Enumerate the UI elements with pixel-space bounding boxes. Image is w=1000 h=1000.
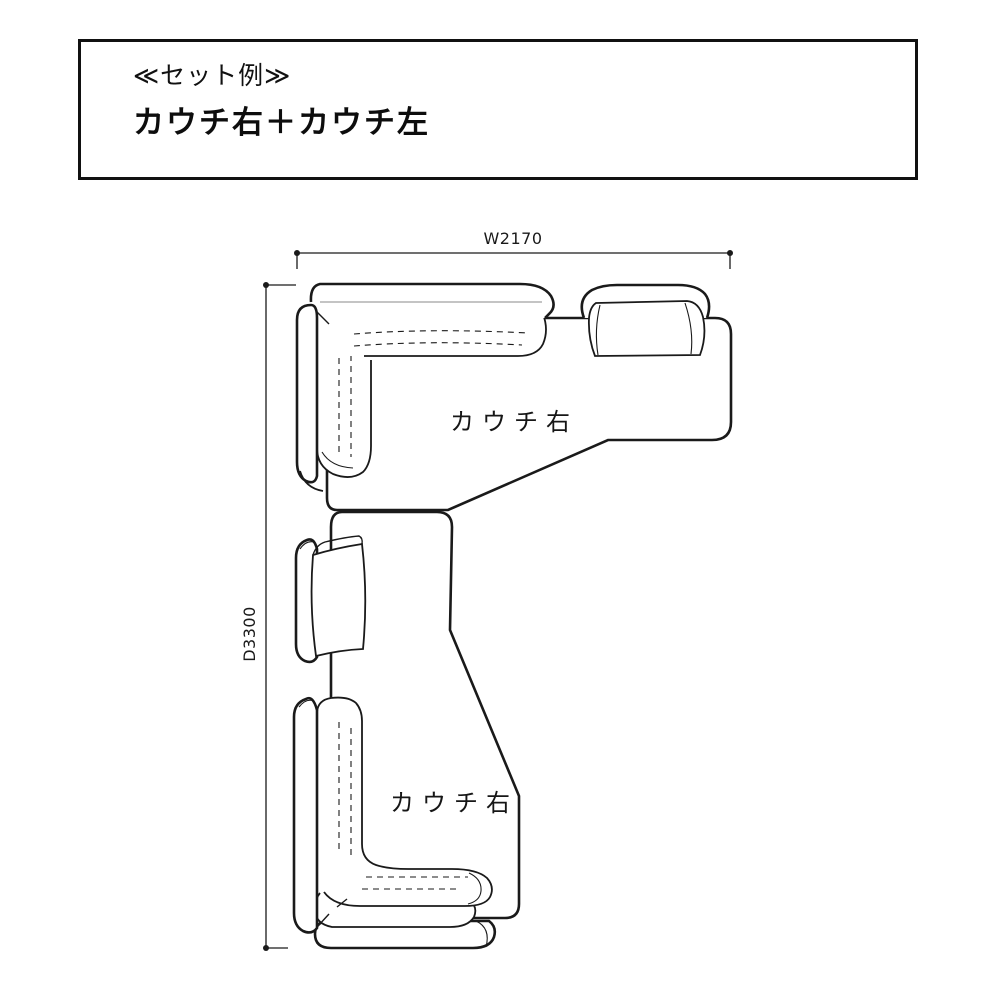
bottom-couch-headrest-fill	[312, 544, 366, 656]
width-dimension-dot-right	[727, 250, 733, 256]
bottom-couch: カウチ右	[294, 512, 519, 948]
top-couch-label: カウチ右	[450, 408, 578, 436]
couch-layout-drawing: W2170 D3300	[0, 0, 1000, 1000]
bottom-couch-label: カウチ右	[390, 789, 518, 817]
top-couch-back-roll-fill	[311, 284, 554, 318]
width-dimension-group: W2170	[294, 229, 733, 269]
depth-dimension-dot-bottom	[263, 945, 269, 951]
depth-dimension-dot-top	[263, 282, 269, 288]
bottom-couch-lower-pad-fill	[294, 698, 317, 932]
page: ≪セット例≫ カウチ右＋カウチ左 W2170 D3300	[0, 0, 1000, 1000]
top-couch: カウチ右	[297, 284, 731, 510]
top-couch-armrest-fill	[297, 305, 317, 482]
depth-dimension-label: D3300	[240, 606, 259, 662]
depth-dimension-group: D3300	[240, 282, 296, 951]
width-dimension-label: W2170	[483, 229, 542, 248]
width-dimension-dot-left	[294, 250, 300, 256]
